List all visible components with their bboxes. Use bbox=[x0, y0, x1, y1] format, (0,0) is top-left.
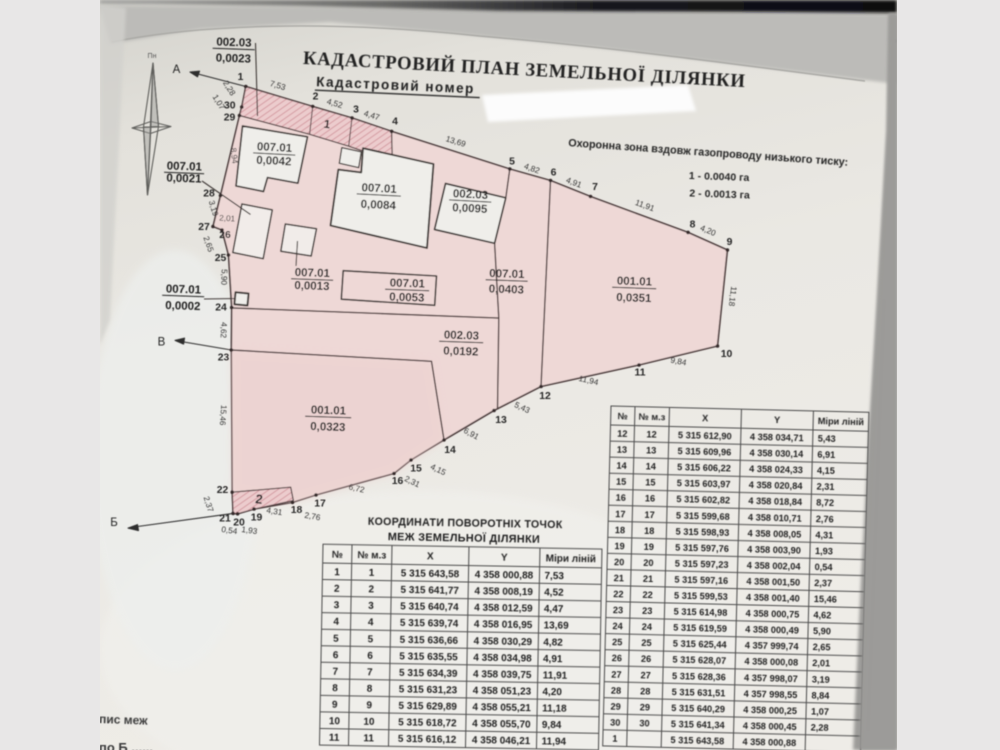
svg-text:13: 13 bbox=[646, 445, 656, 455]
svg-text:5 315 599,68: 5 315 599,68 bbox=[676, 510, 730, 521]
svg-text:16: 16 bbox=[392, 476, 404, 487]
svg-text:1: 1 bbox=[334, 567, 340, 578]
svg-text:001.01: 001.01 bbox=[617, 275, 653, 288]
svg-text:5 315 641,77: 5 315 641,77 bbox=[400, 585, 459, 597]
svg-text:1,07: 1,07 bbox=[811, 706, 829, 716]
svg-text:25: 25 bbox=[215, 253, 227, 264]
svg-text:26: 26 bbox=[641, 654, 651, 664]
svg-text:25: 25 bbox=[612, 637, 622, 647]
svg-text:2: 2 bbox=[313, 92, 319, 103]
svg-text:17: 17 bbox=[314, 499, 326, 510]
svg-text:5,90: 5,90 bbox=[219, 269, 229, 286]
svg-text:Пн: Пн bbox=[148, 53, 157, 60]
svg-text:001.01: 001.01 bbox=[311, 404, 347, 417]
svg-text:7: 7 bbox=[592, 182, 598, 193]
svg-text:X: X bbox=[427, 551, 434, 562]
svg-text:3,19: 3,19 bbox=[812, 674, 830, 684]
svg-text:В: В bbox=[158, 337, 166, 349]
svg-text:4,91: 4,91 bbox=[543, 654, 563, 665]
svg-text:4 358 002,04: 4 358 002,04 bbox=[747, 560, 802, 571]
svg-text:27: 27 bbox=[611, 669, 621, 679]
svg-text:007.01: 007.01 bbox=[390, 277, 426, 290]
svg-text:0,0013: 0,0013 bbox=[294, 280, 330, 293]
svg-text:13: 13 bbox=[617, 445, 627, 455]
svg-text:15,46: 15,46 bbox=[218, 405, 228, 427]
svg-text:4,47: 4,47 bbox=[544, 604, 564, 615]
svg-text:15: 15 bbox=[616, 477, 626, 487]
svg-text:5 315 602,82: 5 315 602,82 bbox=[676, 494, 730, 505]
svg-text:0,0323: 0,0323 bbox=[310, 421, 346, 434]
svg-text:Y: Y bbox=[501, 553, 508, 564]
svg-text:28: 28 bbox=[611, 685, 621, 695]
svg-text:11: 11 bbox=[329, 733, 340, 744]
svg-text:пис меж: пис меж bbox=[99, 712, 148, 728]
svg-text:30: 30 bbox=[639, 718, 649, 728]
svg-text:4: 4 bbox=[392, 117, 398, 128]
svg-text:4 358 034,71: 4 358 034,71 bbox=[750, 432, 804, 443]
svg-text:1,93: 1,93 bbox=[815, 546, 833, 556]
svg-text:4 358 000,75: 4 358 000,75 bbox=[746, 608, 800, 619]
svg-text:5 315 598,93: 5 315 598,93 bbox=[676, 526, 730, 537]
svg-text:11,18: 11,18 bbox=[542, 703, 567, 714]
svg-text:5 315 619,59: 5 315 619,59 bbox=[673, 623, 727, 634]
svg-text:12: 12 bbox=[617, 429, 627, 439]
svg-text:27: 27 bbox=[640, 670, 650, 680]
svg-text:4,31: 4,31 bbox=[815, 530, 833, 540]
svg-text:5 315 640,74: 5 315 640,74 bbox=[400, 602, 459, 614]
svg-text:МЕЖ ЗЕМЕЛЬНОЇ ДІЛЯНКИ: МЕЖ ЗЕМЕЛЬНОЇ ДІЛЯНКИ bbox=[388, 530, 541, 546]
svg-text:16: 16 bbox=[616, 493, 626, 503]
svg-text:14: 14 bbox=[616, 461, 627, 471]
svg-text:4 358 039,75: 4 358 039,75 bbox=[473, 669, 532, 681]
svg-text:18: 18 bbox=[644, 526, 654, 536]
svg-text:16: 16 bbox=[645, 494, 655, 504]
svg-text:29: 29 bbox=[640, 702, 650, 712]
svg-text:4 358 018,84: 4 358 018,84 bbox=[748, 496, 803, 507]
svg-text:5 315 641,34: 5 315 641,34 bbox=[671, 719, 726, 730]
svg-text:5: 5 bbox=[367, 634, 373, 645]
svg-text:23: 23 bbox=[218, 353, 230, 364]
svg-text:7,53: 7,53 bbox=[544, 571, 564, 582]
svg-text:3: 3 bbox=[368, 601, 374, 612]
svg-text:5 315 625,44: 5 315 625,44 bbox=[673, 639, 728, 650]
svg-text:4 358 055,21: 4 358 055,21 bbox=[472, 702, 531, 714]
svg-text:5 315 631,51: 5 315 631,51 bbox=[672, 687, 726, 698]
svg-text:5 315 643,58: 5 315 643,58 bbox=[670, 735, 724, 746]
svg-text:13,69: 13,69 bbox=[544, 621, 570, 632]
svg-text:5 315 629,89: 5 315 629,89 bbox=[398, 701, 457, 713]
svg-text:9,84: 9,84 bbox=[542, 720, 562, 731]
svg-text:002.03: 002.03 bbox=[216, 36, 252, 49]
svg-text:2,65: 2,65 bbox=[813, 642, 831, 652]
svg-text:0,0053: 0,0053 bbox=[389, 291, 425, 304]
svg-text:4 358 012,59: 4 358 012,59 bbox=[474, 603, 533, 615]
svg-text:4 358 000,25: 4 358 000,25 bbox=[743, 705, 797, 716]
svg-text:0,0351: 0,0351 bbox=[616, 292, 652, 305]
svg-text:5,43: 5,43 bbox=[818, 434, 836, 444]
svg-text:9: 9 bbox=[727, 237, 733, 248]
svg-text:26: 26 bbox=[612, 653, 622, 663]
svg-text:6: 6 bbox=[367, 651, 373, 662]
svg-text:15: 15 bbox=[645, 478, 655, 488]
svg-text:4 358 001,40: 4 358 001,40 bbox=[746, 592, 800, 603]
svg-text:007.01: 007.01 bbox=[489, 268, 525, 281]
svg-text:23: 23 bbox=[642, 606, 652, 616]
svg-text:8,84: 8,84 bbox=[811, 690, 830, 700]
svg-text:2: 2 bbox=[334, 584, 340, 595]
svg-text:4 358 008,05: 4 358 008,05 bbox=[747, 528, 801, 539]
svg-text:5 315 599,53: 5 315 599,53 bbox=[674, 591, 728, 602]
svg-text:12: 12 bbox=[646, 429, 656, 439]
svg-text:18: 18 bbox=[291, 505, 303, 516]
svg-text:Міри ліній: Міри ліній bbox=[546, 553, 596, 565]
svg-text:5 315 614,98: 5 315 614,98 bbox=[674, 607, 728, 618]
svg-text:№ м.з: № м.з bbox=[357, 550, 386, 562]
svg-text:А: А bbox=[173, 64, 181, 76]
svg-text:4 358 000,88: 4 358 000,88 bbox=[475, 570, 534, 582]
svg-text:4 357 998,07: 4 357 998,07 bbox=[744, 673, 798, 684]
svg-text:5 315 616,12: 5 315 616,12 bbox=[398, 734, 457, 746]
svg-text:007.01: 007.01 bbox=[166, 283, 202, 296]
svg-text:4: 4 bbox=[368, 617, 374, 628]
svg-text:15: 15 bbox=[410, 464, 422, 475]
svg-text:19: 19 bbox=[251, 513, 263, 524]
svg-text:5 315 631,23: 5 315 631,23 bbox=[399, 684, 458, 696]
svg-text:19: 19 bbox=[644, 542, 654, 552]
svg-text:0,0021: 0,0021 bbox=[166, 172, 202, 185]
svg-text:5 315 635,55: 5 315 635,55 bbox=[399, 651, 458, 663]
svg-text:0,0002: 0,0002 bbox=[165, 300, 201, 313]
svg-text:2,37: 2,37 bbox=[814, 578, 832, 588]
svg-text:5 315 597,16: 5 315 597,16 bbox=[674, 575, 728, 586]
svg-text:29: 29 bbox=[224, 113, 236, 124]
svg-text:6: 6 bbox=[551, 168, 557, 179]
svg-text:Б: Б bbox=[110, 517, 118, 529]
svg-text:2,28: 2,28 bbox=[811, 722, 829, 732]
svg-text:8: 8 bbox=[690, 220, 696, 231]
svg-text:4 357 998,55: 4 357 998,55 bbox=[744, 689, 798, 700]
svg-text:1 - 0.0040 га: 1 - 0.0040 га bbox=[689, 170, 750, 184]
svg-text:23: 23 bbox=[613, 605, 623, 615]
svg-text:2,76: 2,76 bbox=[816, 514, 834, 524]
svg-text:5 315 640,29: 5 315 640,29 bbox=[671, 703, 725, 714]
svg-text:5: 5 bbox=[509, 157, 515, 168]
svg-text:26: 26 bbox=[219, 230, 231, 241]
svg-text:10: 10 bbox=[329, 716, 341, 727]
svg-text:24: 24 bbox=[215, 303, 227, 314]
svg-text:4 358 051,23: 4 358 051,23 bbox=[473, 686, 532, 698]
svg-text:4,52: 4,52 bbox=[544, 587, 564, 598]
svg-text:7: 7 bbox=[367, 667, 373, 678]
svg-text:№: № bbox=[618, 411, 628, 421]
svg-text:8: 8 bbox=[332, 683, 338, 694]
svg-text:25: 25 bbox=[641, 638, 651, 648]
svg-text:4 358 034,98: 4 358 034,98 bbox=[473, 652, 532, 664]
svg-text:2: 2 bbox=[368, 584, 374, 595]
svg-text:Міри ліній: Міри ліній bbox=[818, 416, 865, 427]
svg-text:Y: Y bbox=[774, 415, 780, 425]
svg-text:2,01: 2,01 bbox=[812, 658, 830, 668]
svg-text:9: 9 bbox=[366, 700, 372, 711]
svg-text:4,62: 4,62 bbox=[813, 610, 831, 620]
svg-text:4 358 024,33: 4 358 024,33 bbox=[749, 464, 803, 475]
svg-text:29: 29 bbox=[610, 701, 620, 711]
svg-text:24: 24 bbox=[642, 622, 653, 632]
svg-text:1: 1 bbox=[612, 734, 617, 744]
svg-text:4,82: 4,82 bbox=[543, 637, 563, 648]
svg-text:5 315 612,90: 5 315 612,90 bbox=[678, 430, 732, 441]
svg-text:10: 10 bbox=[363, 717, 375, 728]
svg-text:2,31: 2,31 bbox=[816, 482, 834, 492]
svg-text:4 358 010,71: 4 358 010,71 bbox=[748, 512, 802, 523]
svg-text:4 358 000,08: 4 358 000,08 bbox=[744, 657, 798, 668]
svg-text:4: 4 bbox=[333, 617, 339, 628]
svg-text:0,0042: 0,0042 bbox=[256, 155, 292, 169]
svg-text:4 358 055,70: 4 358 055,70 bbox=[472, 719, 531, 731]
svg-text:5 315 597,23: 5 315 597,23 bbox=[675, 559, 729, 570]
svg-text:4 358 008,19: 4 358 008,19 bbox=[474, 586, 533, 598]
svg-text:15,46: 15,46 bbox=[814, 594, 837, 605]
svg-text:5 315 609,96: 5 315 609,96 bbox=[677, 446, 731, 457]
svg-text:14: 14 bbox=[645, 461, 656, 471]
svg-text:5 315 628,36: 5 315 628,36 bbox=[672, 671, 726, 682]
svg-text:5 315 606,22: 5 315 606,22 bbox=[677, 462, 731, 473]
svg-text:5 315 643,58: 5 315 643,58 bbox=[401, 568, 460, 580]
svg-text:5 315 628,07: 5 315 628,07 bbox=[672, 655, 726, 666]
svg-text:4 358 001,50: 4 358 001,50 bbox=[746, 576, 800, 587]
svg-text:6: 6 bbox=[333, 650, 339, 661]
svg-text:22: 22 bbox=[642, 590, 652, 600]
svg-text:4 358 030,29: 4 358 030,29 bbox=[474, 636, 533, 648]
svg-text:5 315 634,39: 5 315 634,39 bbox=[399, 668, 458, 680]
svg-text:3: 3 bbox=[353, 105, 359, 116]
svg-text:14: 14 bbox=[444, 445, 456, 456]
svg-text:22: 22 bbox=[217, 485, 229, 496]
svg-text:4 358 003,90: 4 358 003,90 bbox=[747, 544, 801, 555]
svg-text:28: 28 bbox=[640, 686, 650, 696]
svg-text:5: 5 bbox=[333, 633, 339, 644]
svg-text:11,94: 11,94 bbox=[541, 736, 566, 747]
svg-text:4,20: 4,20 bbox=[542, 687, 562, 698]
svg-text:по Б ......: по Б ...... bbox=[99, 740, 153, 750]
svg-text:4,15: 4,15 bbox=[817, 466, 835, 476]
svg-text:9: 9 bbox=[332, 700, 338, 711]
svg-text:4 358 046,21: 4 358 046,21 bbox=[472, 735, 531, 747]
svg-text:20: 20 bbox=[614, 557, 624, 567]
svg-text:5,90: 5,90 bbox=[813, 626, 831, 636]
svg-text:10: 10 bbox=[721, 349, 733, 360]
svg-text:19: 19 bbox=[614, 541, 624, 551]
svg-text:4,62: 4,62 bbox=[219, 322, 229, 339]
svg-text:12: 12 bbox=[539, 391, 551, 402]
svg-text:24: 24 bbox=[612, 621, 623, 631]
svg-text:7: 7 bbox=[332, 667, 338, 678]
svg-text:2,01: 2,01 bbox=[219, 213, 236, 223]
svg-text:28: 28 bbox=[203, 189, 215, 200]
svg-text:3: 3 bbox=[334, 600, 340, 611]
svg-text:0,54: 0,54 bbox=[815, 562, 834, 572]
svg-text:0,0023: 0,0023 bbox=[216, 52, 252, 65]
svg-text:27: 27 bbox=[198, 222, 210, 233]
svg-text:0,0084: 0,0084 bbox=[360, 199, 396, 213]
svg-text:№ м.з: № м.з bbox=[638, 412, 665, 423]
svg-text:17: 17 bbox=[644, 510, 654, 520]
svg-text:5 315 636,66: 5 315 636,66 bbox=[400, 635, 459, 647]
svg-text:X: X bbox=[702, 413, 709, 423]
svg-text:18: 18 bbox=[615, 525, 625, 535]
svg-text:4 357 999,74: 4 357 999,74 bbox=[745, 641, 800, 652]
svg-text:002.03: 002.03 bbox=[444, 329, 480, 342]
svg-text:8,72: 8,72 bbox=[816, 498, 834, 508]
svg-text:11,91: 11,91 bbox=[543, 670, 568, 681]
svg-text:1: 1 bbox=[369, 568, 375, 579]
svg-text:20: 20 bbox=[643, 558, 653, 568]
svg-text:13: 13 bbox=[495, 415, 507, 426]
svg-text:5 315 639,74: 5 315 639,74 bbox=[400, 618, 459, 630]
svg-text:8,94: 8,94 bbox=[229, 147, 240, 164]
svg-text:0,0192: 0,0192 bbox=[443, 345, 479, 358]
svg-text:5 315 603,97: 5 315 603,97 bbox=[677, 478, 731, 489]
svg-text:21: 21 bbox=[643, 574, 653, 584]
svg-text:№: № bbox=[332, 550, 343, 561]
svg-text:002.03: 002.03 bbox=[453, 188, 489, 202]
svg-text:30: 30 bbox=[610, 717, 620, 727]
svg-text:21: 21 bbox=[614, 573, 624, 583]
svg-text:11: 11 bbox=[635, 368, 646, 379]
svg-text:17: 17 bbox=[615, 509, 625, 519]
svg-text:11: 11 bbox=[363, 733, 374, 744]
svg-text:4 358 020,84: 4 358 020,84 bbox=[749, 480, 804, 491]
svg-text:4 358 030,14: 4 358 030,14 bbox=[749, 448, 804, 459]
svg-text:4 358 016,95: 4 358 016,95 bbox=[474, 619, 533, 631]
svg-text:1: 1 bbox=[238, 72, 244, 83]
svg-text:0,0095: 0,0095 bbox=[452, 202, 488, 216]
svg-text:21: 21 bbox=[219, 514, 231, 525]
svg-text:5 315 618,72: 5 315 618,72 bbox=[398, 717, 457, 729]
svg-text:2 - 0.0013 га: 2 - 0.0013 га bbox=[689, 187, 750, 201]
svg-text:0,0403: 0,0403 bbox=[489, 283, 525, 296]
svg-text:4 358 000,88: 4 358 000,88 bbox=[742, 737, 796, 748]
svg-text:4 358 000,45: 4 358 000,45 bbox=[743, 721, 797, 732]
svg-text:6,91: 6,91 bbox=[817, 450, 835, 460]
svg-text:8: 8 bbox=[367, 684, 373, 695]
svg-text:007.01: 007.01 bbox=[295, 267, 331, 280]
svg-text:4 358 000,49: 4 358 000,49 bbox=[745, 624, 799, 635]
svg-text:22: 22 bbox=[613, 589, 623, 599]
svg-text:5 315 597,76: 5 315 597,76 bbox=[675, 543, 729, 554]
